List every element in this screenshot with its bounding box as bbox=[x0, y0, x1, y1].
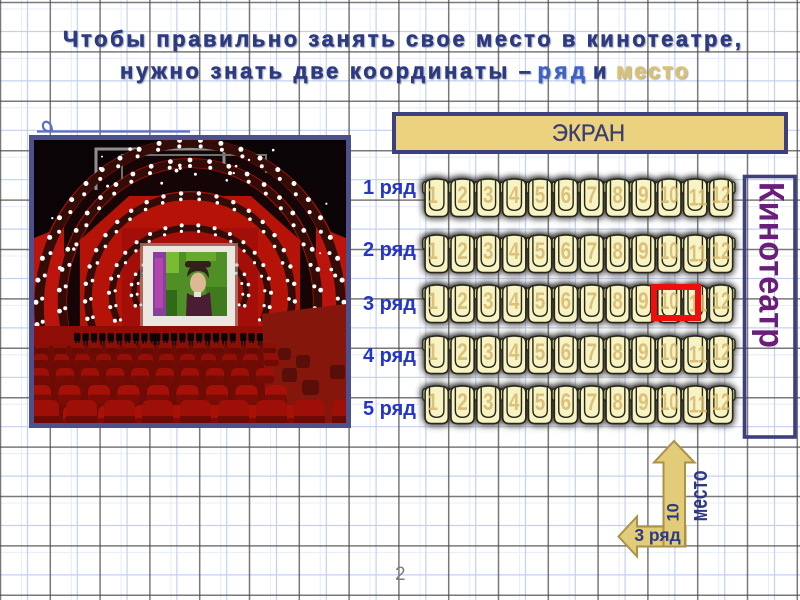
svg-text:2: 2 bbox=[457, 389, 468, 416]
svg-text:10: 10 bbox=[665, 503, 683, 521]
svg-text:3 ряд: 3 ряд bbox=[363, 293, 416, 315]
svg-text:9: 9 bbox=[638, 288, 649, 315]
svg-text:7: 7 bbox=[586, 389, 597, 416]
svg-text:11: 11 bbox=[689, 241, 708, 268]
svg-text:5: 5 bbox=[535, 339, 546, 366]
svg-text:3: 3 bbox=[483, 182, 494, 209]
svg-text:7: 7 bbox=[586, 339, 597, 366]
svg-text:12: 12 bbox=[712, 238, 731, 265]
svg-text:12: 12 bbox=[712, 288, 731, 315]
svg-text:3 ряд: 3 ряд bbox=[634, 525, 680, 545]
svg-text:4: 4 bbox=[509, 182, 520, 209]
svg-text:и: и bbox=[593, 58, 607, 83]
svg-text:3: 3 bbox=[483, 288, 494, 315]
svg-text:1: 1 bbox=[427, 389, 438, 416]
svg-text:4: 4 bbox=[509, 288, 520, 315]
svg-text:1: 1 bbox=[427, 339, 438, 366]
svg-text:2 ряд: 2 ряд bbox=[363, 239, 416, 261]
svg-text:2: 2 bbox=[457, 339, 468, 366]
svg-text:10: 10 bbox=[660, 238, 679, 265]
svg-text:2: 2 bbox=[457, 238, 468, 265]
svg-text:9: 9 bbox=[638, 339, 649, 366]
svg-text:12: 12 bbox=[712, 389, 731, 416]
svg-text:1 ряд: 1 ряд bbox=[363, 177, 416, 199]
svg-text:9: 9 bbox=[638, 238, 649, 265]
svg-text:место: место bbox=[686, 471, 713, 522]
svg-text:3: 3 bbox=[483, 389, 494, 416]
svg-text:8: 8 bbox=[612, 238, 623, 265]
svg-text:6: 6 bbox=[561, 238, 572, 265]
svg-text:1: 1 bbox=[427, 238, 438, 265]
svg-text:11: 11 bbox=[689, 342, 708, 369]
svg-text:2: 2 bbox=[457, 182, 468, 209]
svg-text:9: 9 bbox=[638, 182, 649, 209]
svg-text:11: 11 bbox=[689, 185, 708, 212]
svg-text:8: 8 bbox=[612, 339, 623, 366]
svg-text:нужно знать две координаты –: нужно знать две координаты – bbox=[120, 58, 531, 83]
svg-text:8: 8 bbox=[612, 182, 623, 209]
svg-text:8: 8 bbox=[612, 389, 623, 416]
svg-text:3: 3 bbox=[483, 238, 494, 265]
svg-text:7: 7 bbox=[586, 182, 597, 209]
svg-text:ряд: ряд bbox=[538, 58, 586, 83]
svg-text:6: 6 bbox=[561, 339, 572, 366]
svg-text:ЭКРАН: ЭКРАН bbox=[552, 120, 625, 147]
svg-text:5: 5 bbox=[535, 182, 546, 209]
svg-text:5 ряд: 5 ряд bbox=[363, 398, 416, 420]
svg-text:4: 4 bbox=[509, 238, 520, 265]
svg-text:Чтобы правильно занять свое ме: Чтобы правильно занять свое место в кино… bbox=[63, 26, 741, 51]
svg-text:2: 2 bbox=[457, 288, 468, 315]
svg-text:9: 9 bbox=[638, 389, 649, 416]
svg-text:3: 3 bbox=[483, 339, 494, 366]
svg-text:8: 8 bbox=[612, 288, 623, 315]
svg-text:место: место bbox=[616, 58, 688, 83]
svg-text:12: 12 bbox=[712, 182, 731, 209]
svg-text:1: 1 bbox=[427, 182, 438, 209]
svg-text:6: 6 bbox=[561, 389, 572, 416]
svg-text:Кинотеатр: Кинотеатр bbox=[752, 182, 791, 348]
svg-text:1: 1 bbox=[427, 288, 438, 315]
svg-text:10: 10 bbox=[660, 389, 679, 416]
svg-text:10: 10 bbox=[660, 288, 679, 315]
svg-text:12: 12 bbox=[712, 339, 731, 366]
svg-text:10: 10 bbox=[660, 182, 679, 209]
svg-text:11: 11 bbox=[689, 392, 708, 419]
svg-text:6: 6 bbox=[561, 182, 572, 209]
svg-text:5: 5 bbox=[535, 238, 546, 265]
svg-text:6: 6 bbox=[561, 288, 572, 315]
svg-text:4 ряд: 4 ряд bbox=[363, 345, 416, 367]
svg-text:5: 5 bbox=[535, 389, 546, 416]
svg-text:2: 2 bbox=[395, 564, 406, 585]
svg-text:5: 5 bbox=[535, 288, 546, 315]
svg-text:10: 10 bbox=[660, 339, 679, 366]
svg-text:4: 4 bbox=[509, 389, 520, 416]
svg-text:7: 7 bbox=[586, 238, 597, 265]
svg-text:7: 7 bbox=[586, 288, 597, 315]
svg-text:4: 4 bbox=[509, 339, 520, 366]
